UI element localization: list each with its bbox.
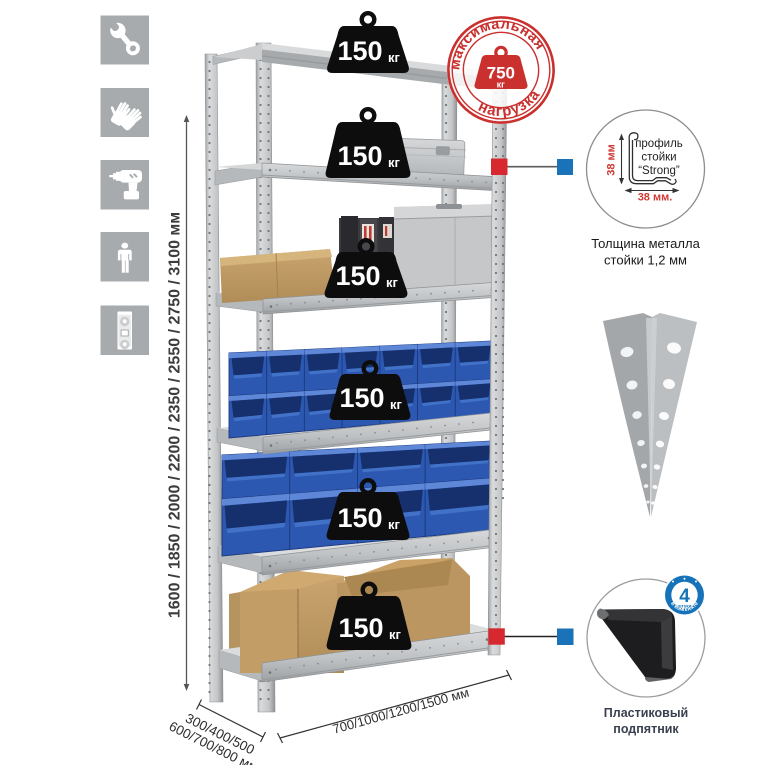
svg-text:38 мм.: 38 мм. (638, 192, 673, 204)
svg-text:150: 150 (337, 141, 382, 171)
svg-text:150: 150 (338, 613, 383, 643)
svg-text:стойки: стойки (641, 152, 676, 164)
svg-text:кг: кг (386, 275, 399, 290)
svg-text:профиль: профиль (635, 138, 683, 150)
svg-text:150: 150 (337, 503, 382, 533)
svg-text:1600 / 1850 / 2000 / 2200 / 23: 1600 / 1850 / 2000 / 2200 / 2350 / 2550 … (167, 212, 184, 618)
svg-text:кг: кг (388, 155, 401, 170)
svg-text:“Strong”: “Strong” (638, 165, 680, 177)
svg-text:стойки 1,2 мм: стойки 1,2 мм (604, 253, 687, 268)
svg-text:Толщина металла: Толщина металла (591, 236, 700, 251)
svg-text:кг: кг (390, 397, 403, 412)
svg-text:подпятник: подпятник (613, 722, 679, 736)
svg-text:Пластиковый: Пластиковый (604, 706, 688, 720)
svg-text:кг: кг (389, 627, 402, 642)
svg-text:150: 150 (335, 261, 380, 291)
svg-text:кг: кг (388, 50, 401, 65)
svg-text:кг: кг (388, 517, 401, 532)
svg-text:150: 150 (339, 383, 384, 413)
svg-text:150: 150 (337, 36, 382, 66)
svg-text:38 мм: 38 мм (606, 144, 618, 176)
svg-text:кг: кг (497, 80, 506, 90)
